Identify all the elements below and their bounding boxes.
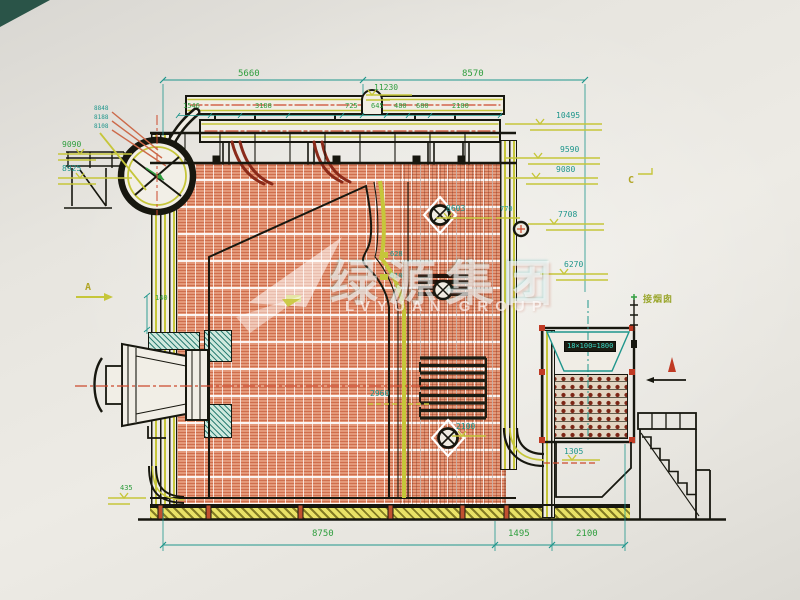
label-dim-2960: 2960 bbox=[370, 390, 389, 398]
label-level-9090: 9090 bbox=[62, 141, 81, 149]
label-dim-680: 680 bbox=[416, 103, 429, 110]
label-level-8108: 8108 bbox=[94, 124, 108, 130]
label-section-c: C bbox=[628, 176, 634, 186]
label-level-9590: 9590 bbox=[560, 146, 579, 154]
label-dim-645: 645 bbox=[371, 103, 384, 110]
label-dim-725: 725 bbox=[345, 103, 358, 110]
label-dim-3188: 3188 bbox=[255, 103, 272, 110]
label-dim-8750: 8750 bbox=[312, 530, 334, 539]
label-section-a: A bbox=[85, 283, 91, 293]
label-dim-140: 140 bbox=[155, 295, 168, 302]
label-level-7708: 7708 bbox=[558, 211, 577, 219]
annotation-layer: 5660857011230154631887256454806802180104… bbox=[0, 0, 800, 600]
label-dim-1546: 1546 bbox=[183, 103, 200, 110]
label-dim-770: 770 bbox=[500, 206, 513, 213]
label-dim-480: 480 bbox=[394, 103, 407, 110]
label-dim-5660: 5660 bbox=[238, 70, 260, 79]
label-dim-1495: 1495 bbox=[508, 530, 530, 539]
label-airheater-tube-count: 18×100=1800 bbox=[564, 341, 616, 352]
label-level-6270: 6270 bbox=[564, 261, 583, 269]
label-dim-2180: 2180 bbox=[452, 103, 469, 110]
label-dim-610: 610 bbox=[390, 273, 403, 280]
label-level-8188: 8188 bbox=[94, 115, 108, 121]
label-level-11230: 11230 bbox=[374, 84, 398, 92]
label-level-435: 435 bbox=[120, 485, 133, 492]
label-level-8925: 8925 bbox=[62, 165, 81, 173]
label-dim-628: 628 bbox=[390, 251, 403, 258]
label-level-8603: 8603 bbox=[446, 205, 465, 213]
label-level-1305: 1305 bbox=[564, 448, 583, 456]
label-dim-2100-right: 2100 bbox=[576, 530, 598, 539]
scanned-drawing-photo: 5660857011230154631887256454806802180104… bbox=[0, 0, 800, 600]
label-level-8848: 8848 bbox=[94, 106, 108, 112]
label-dim-8570: 8570 bbox=[462, 70, 484, 79]
label-flue-outlet-note: 接烟囱 bbox=[643, 296, 673, 305]
label-dim-2100-mid: 2100 bbox=[456, 423, 475, 431]
label-level-9080: 9080 bbox=[556, 166, 575, 174]
label-level-10495: 10495 bbox=[556, 112, 580, 120]
